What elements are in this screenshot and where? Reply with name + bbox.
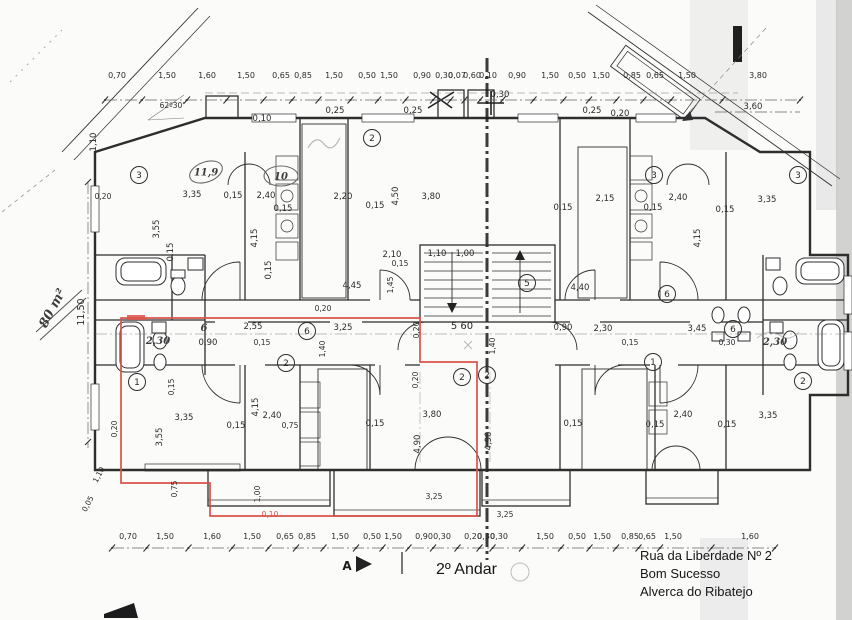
room-number: 2	[283, 359, 289, 369]
room-number: 6	[304, 327, 310, 337]
dimension-dot	[450, 99, 452, 101]
dim-label: 2,55	[244, 322, 263, 332]
dim-label: 0,15	[224, 191, 243, 201]
room-number: 3	[136, 171, 142, 181]
dimension-dot	[104, 99, 106, 101]
dim-label: 3,80	[422, 192, 441, 202]
dim-label: 1,10	[428, 249, 447, 259]
dimension-value: 1,50	[243, 532, 261, 541]
dimension-dot	[616, 99, 618, 101]
dim-label: 1,00	[253, 485, 262, 502]
dim-label: 0,30	[719, 338, 736, 347]
address-town: Alverca do Ribatejo	[640, 583, 772, 601]
dimension-value: 1,50	[158, 71, 176, 80]
dimension-dot	[111, 547, 113, 549]
dimension-dot	[588, 99, 590, 101]
dimension-dot	[432, 547, 434, 549]
dimension-dot	[382, 547, 384, 549]
dim-label: 2,30	[594, 324, 613, 334]
dimension-dot	[377, 99, 379, 101]
dimension-value: 1,50	[593, 532, 611, 541]
dim-label: 0,20	[110, 420, 119, 437]
dim-label: 4,40	[571, 283, 590, 293]
dimension-dot	[799, 99, 801, 101]
dim-label: 3,45	[688, 324, 707, 334]
dimension-value: 0,70	[108, 71, 126, 80]
toilet	[738, 307, 750, 323]
dimension-labels: 0,100,250,250,250,200,303,6062º30'1,100,…	[36, 90, 787, 573]
dim-label: 0,15	[227, 421, 246, 431]
dimension-dot	[355, 547, 357, 549]
dimension-dot	[479, 547, 481, 549]
dimension-value: 1,60	[203, 532, 221, 541]
dim-label: 3,35	[183, 190, 202, 200]
dim-label: 3,35	[759, 411, 778, 421]
bidet	[154, 354, 166, 370]
dimension-dot	[408, 547, 410, 549]
dimension-value: 0,50	[358, 71, 376, 80]
dimension-value: 0,50	[568, 71, 586, 80]
dim-label: 1,45	[386, 276, 395, 293]
dim-label: 0,15	[644, 203, 663, 213]
dim-label: 0,20	[412, 321, 421, 338]
room-number: 1	[650, 358, 656, 368]
toilet	[171, 277, 185, 295]
bidet	[784, 354, 796, 370]
dim-label: 0,15	[166, 243, 176, 262]
room-number: 1	[134, 378, 140, 388]
dim-label: 0,20	[315, 304, 332, 313]
floor-label: 2º Andar	[436, 561, 497, 579]
dimension-value: 1,50	[325, 71, 343, 80]
dimension-value: 0,90	[413, 71, 431, 80]
dimension-dot	[141, 99, 143, 101]
dim-label: 0,15	[366, 419, 385, 429]
dimension-value: 0,65	[276, 532, 294, 541]
dim-label: 3,25	[497, 510, 514, 519]
dim-label: 0,15	[366, 201, 385, 211]
dim-label: 0,10	[262, 510, 279, 519]
section-marker	[356, 552, 402, 574]
dim-label: 11,50	[76, 298, 87, 325]
dim-label: 3,55	[155, 428, 165, 447]
stair-up-arrow	[515, 250, 525, 260]
dim-label: 0,15	[167, 378, 176, 395]
dimension-value: 0,85	[621, 532, 639, 541]
dimension-value: 0,85	[298, 532, 316, 541]
dim-label: 2,40	[263, 411, 282, 421]
balconies	[145, 464, 718, 516]
dimension-dot	[521, 547, 523, 549]
dimension-value: 1,60	[741, 532, 759, 541]
room-number: 2	[369, 134, 375, 144]
dim-label: 1,10	[89, 133, 99, 152]
dim-label: 3,25	[334, 323, 353, 333]
dim-label: 2,15	[596, 194, 615, 204]
dimension-dot	[268, 547, 270, 549]
dimension-dot	[146, 547, 148, 549]
dim-label: 2,40	[257, 191, 276, 201]
dimension-dot	[226, 99, 228, 101]
dimension-dot	[350, 99, 352, 101]
dimension-dot	[670, 99, 672, 101]
dim-label: 0,15	[564, 419, 583, 429]
dimension-value: 1,50	[384, 532, 402, 541]
dim-label: 3,55	[152, 220, 162, 239]
room-number: 3	[651, 171, 657, 181]
dim-label: 0,20	[611, 109, 630, 119]
dim-label: 4,90	[484, 432, 494, 451]
dim-label: 2,40	[669, 193, 688, 203]
dim-label: A	[342, 559, 352, 573]
room-number: 6	[664, 290, 670, 300]
room-number-circles: 32336566211222	[129, 130, 812, 391]
dimension-value: 0,70	[119, 532, 137, 541]
dim-label: 3,35	[758, 195, 777, 205]
dimension-value: 1,50	[592, 71, 610, 80]
dimension-dot	[774, 547, 776, 549]
dimension-dot	[492, 547, 494, 549]
room-number: 5	[524, 279, 530, 289]
dim-label: 0,20	[95, 192, 112, 201]
dimension-value: 0,50	[568, 532, 586, 541]
dimension-dot	[722, 99, 724, 101]
dimension-dot	[533, 99, 535, 101]
dim-label: 3,25	[426, 492, 443, 501]
dimension-dot	[457, 547, 459, 549]
dim-label: 0,75	[282, 421, 299, 430]
dim-label: 2,20	[334, 192, 353, 202]
handwritten-area-value: 11,9	[194, 168, 218, 179]
dim-label: 0,75	[170, 480, 179, 497]
dim-label: 0,25	[583, 106, 602, 116]
dimension-dot	[589, 547, 591, 549]
room-number: 2	[800, 377, 806, 387]
dimension-dot	[563, 99, 565, 101]
dimension-value: 1,50	[156, 532, 174, 541]
floor-plan-drawing: 0,701,501,601,500,650,851,500,501,500,90…	[0, 0, 852, 620]
dim-label: 62º30'	[160, 101, 185, 110]
dim-label: 5 60	[451, 321, 473, 332]
dimension-value: 0,65	[272, 71, 290, 80]
address-street: Rua da Liberdade Nº 2	[640, 547, 772, 565]
toilet	[712, 307, 724, 323]
dimension-dot	[432, 99, 434, 101]
dim-label: 6	[201, 323, 208, 334]
dim-label: 4,15	[693, 229, 703, 248]
address-block: Rua da Liberdade Nº 2 Bom Sucesso Alverc…	[640, 547, 772, 601]
dimension-dot	[231, 547, 233, 549]
dim-label: 0,15	[718, 420, 737, 430]
dimension-dot	[464, 99, 466, 101]
dimension-dot	[295, 547, 297, 549]
dimension-value: 0,65	[646, 71, 664, 80]
dim-label: 2,40	[674, 410, 693, 420]
dimension-dot	[291, 99, 293, 101]
dim-label: 3,80	[423, 410, 442, 420]
handwritten-area-notes: 11,910	[187, 157, 298, 187]
handwritten-area-value: 10	[274, 172, 288, 183]
dim-label: 1,00	[456, 249, 475, 259]
dim-label: 0,15	[254, 338, 271, 347]
dimension-value: 0,30	[490, 532, 508, 541]
dimension-value: 0,65	[638, 532, 656, 541]
dimension-dot	[318, 99, 320, 101]
dimension-dot	[560, 547, 562, 549]
room-number: 6	[730, 325, 736, 335]
sink	[188, 258, 203, 270]
dim-label: 0,25	[326, 106, 345, 116]
dimension-value: 0,90	[508, 71, 526, 80]
dim-label: 3,60	[744, 102, 763, 112]
dimension-value: 0,10	[479, 71, 497, 80]
dim-label: 2,30	[145, 336, 170, 347]
bathroom-fixtures	[116, 258, 844, 372]
dim-label: 0,90	[554, 323, 573, 333]
dimension-value: 0,30	[433, 532, 451, 541]
dim-label: 4,90	[413, 435, 423, 454]
dim-label: 4,15	[251, 398, 261, 417]
dimension-dot	[323, 547, 325, 549]
toilet	[773, 277, 787, 295]
room-number: 2	[484, 371, 490, 381]
dimension-value: 1,50	[678, 71, 696, 80]
dimension-dot	[188, 547, 190, 549]
dim-label: 0,15	[274, 204, 293, 214]
dim-label: 0,20	[411, 371, 420, 388]
dim-label: 0,10	[253, 114, 272, 124]
dimension-value: 0,90	[415, 532, 433, 541]
dim-label: 80 m²	[36, 286, 69, 330]
dimension-dot	[263, 99, 265, 101]
dim-label: 0,15	[554, 203, 573, 213]
dimension-dot	[643, 99, 645, 101]
room-number: 2	[459, 373, 465, 383]
dim-label: 0,15	[646, 420, 665, 430]
dimension-value: 1,50	[331, 532, 349, 541]
dim-label: 4,45	[343, 281, 362, 291]
dim-label: 4,15	[250, 229, 260, 248]
scanned-floor-plan: 0,701,501,601,500,650,851,500,501,500,90…	[0, 0, 852, 620]
dimension-value: 1,50	[536, 532, 554, 541]
dim-label: 0,05	[80, 494, 96, 513]
dim-label: 1,40	[318, 340, 327, 357]
dim-label: 0,15	[392, 259, 409, 268]
dim-label: 2,30	[762, 337, 787, 348]
dim-label: 1,10	[91, 465, 107, 484]
dim-label: 0,15	[622, 338, 639, 347]
address-locality: Bom Sucesso	[640, 565, 772, 583]
dimension-dot	[479, 99, 481, 101]
dimension-dot	[615, 547, 617, 549]
dimension-dot	[405, 99, 407, 101]
dim-label: 0,25	[404, 106, 423, 116]
dimension-value: 1,50	[380, 71, 398, 80]
dimension-value: 1,50	[237, 71, 255, 80]
dimension-value: 1,50	[664, 532, 682, 541]
dim-label: 0,15	[716, 205, 735, 215]
section-arrow	[356, 556, 372, 572]
dimension-value: 0,85	[623, 71, 641, 80]
dim-label: 0,30	[491, 90, 510, 100]
dimension-value: 1,60	[198, 71, 216, 80]
dim-label: 3,35	[175, 413, 194, 423]
dim-label: 0,90	[199, 338, 218, 348]
dimension-value: 0,85	[294, 71, 312, 80]
dimension-dot	[186, 99, 188, 101]
dimension-value: 0,50	[363, 532, 381, 541]
dim-label: 4,50	[391, 187, 401, 206]
dim-label: 1,40	[488, 337, 497, 354]
room-number: 3	[795, 171, 801, 181]
dimension-value: 1,50	[541, 71, 559, 80]
dimension-value: 3,80	[749, 71, 767, 80]
dim-label: 0,15	[264, 261, 274, 280]
stair-down-arrow	[447, 303, 457, 313]
